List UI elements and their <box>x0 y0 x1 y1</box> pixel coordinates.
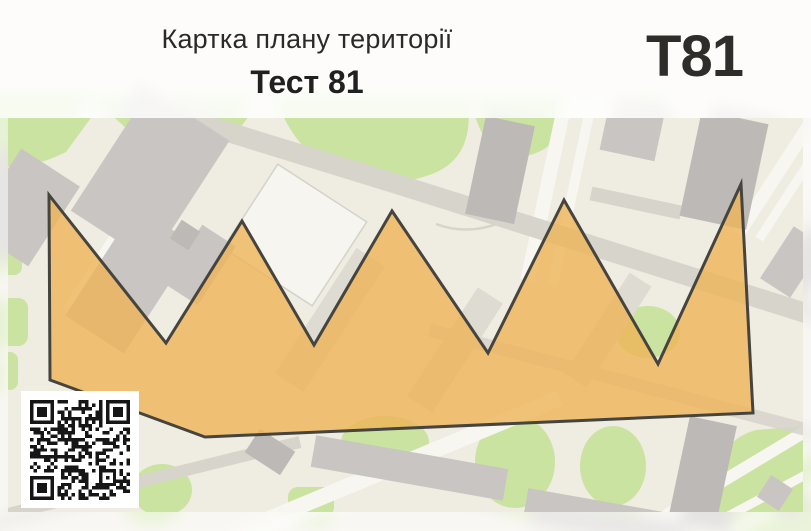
page-title: Картка плану території <box>0 24 614 55</box>
right-margin-veil <box>803 118 811 512</box>
qr-code-card <box>21 391 139 508</box>
territory-code: Т81 <box>646 28 743 86</box>
left-margin-veil <box>0 118 8 512</box>
page-subtitle: Тест 81 <box>0 64 614 101</box>
qr-code-icon <box>30 400 130 500</box>
header: Картка плану території Тест 81 <box>0 0 614 101</box>
territory-plan-card: Картка плану території Тест 81 Т81 <box>0 0 811 531</box>
bottom-margin-veil <box>0 512 811 531</box>
